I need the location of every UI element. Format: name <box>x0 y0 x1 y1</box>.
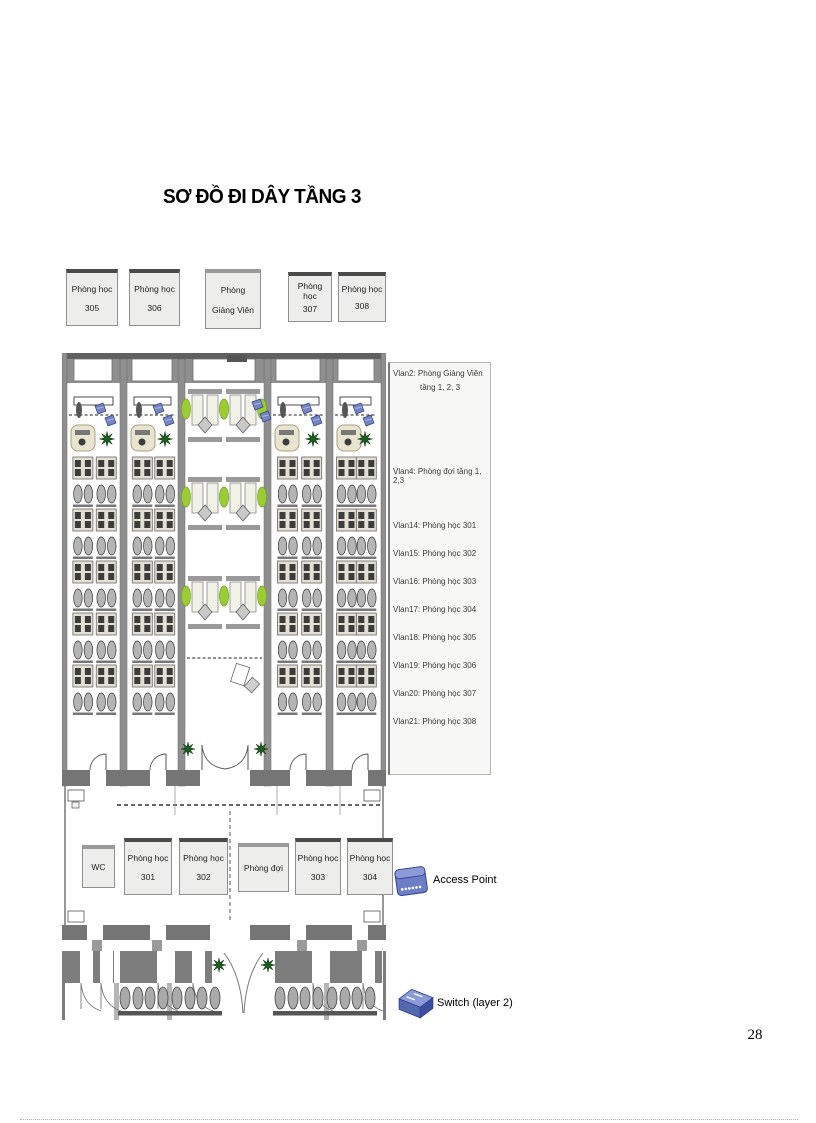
plant-icon <box>100 432 115 447</box>
room-callout-307: Phòng học 307 <box>288 272 332 322</box>
room-callout-308: Phòng học 308 <box>338 272 386 322</box>
chair-pair <box>337 693 357 715</box>
student-desk <box>96 561 116 583</box>
chair-pair <box>337 641 357 663</box>
switch-label: Switch (layer 2) <box>437 997 513 1009</box>
chair-pair <box>155 641 175 663</box>
student-desk <box>132 457 152 479</box>
plant-icon <box>182 487 191 507</box>
chair-pair <box>73 485 93 507</box>
page-title: SƠ ĐỒ ĐI DÂY TẦNG 3 <box>72 186 452 209</box>
chair-pair <box>356 485 376 507</box>
chair-pair <box>155 693 175 715</box>
chair-pair <box>356 693 376 715</box>
chair-pair <box>170 987 197 1016</box>
chair-pair <box>132 641 152 663</box>
door-arc <box>150 754 166 770</box>
chair-pair <box>73 537 93 559</box>
room-callout-line2: 304 <box>363 873 377 882</box>
classroom-305-furniture <box>69 397 118 786</box>
student-desk <box>356 665 376 687</box>
legend-item: Vlan17: Phòng học 304 <box>393 605 488 615</box>
chair-pair <box>118 987 145 1016</box>
student-desk <box>155 561 175 583</box>
document-page: SƠ ĐỒ ĐI DÂY TẦNG 3 Phòng học 305 Phòng … <box>0 0 816 1123</box>
student-desk <box>73 613 93 635</box>
double-door-arc <box>202 745 248 770</box>
teacher-desk <box>131 425 155 451</box>
legend-item: tầng 1, 2, 3 <box>390 383 490 392</box>
device-icon <box>244 677 259 693</box>
switch-icon <box>397 983 435 1021</box>
room-callout-line2: 308 <box>355 302 369 311</box>
classroom-307-furniture <box>273 397 324 786</box>
student-desk <box>302 665 322 687</box>
room-callout-giang-vien: Phòng Giảng Viên <box>205 269 261 329</box>
printer-icon <box>231 663 250 685</box>
room-callout-line1: Phòng học <box>72 285 113 294</box>
student-desk <box>278 509 298 531</box>
chair-pair <box>325 987 352 1016</box>
workstation-cluster <box>220 389 267 442</box>
wifi-device-icon <box>105 415 116 426</box>
access-point-icon <box>393 860 431 900</box>
student-desk <box>73 509 93 531</box>
student-desk <box>356 509 376 531</box>
room-callout-line2: 303 <box>311 873 325 882</box>
student-desk <box>356 561 376 583</box>
student-desk <box>132 613 152 635</box>
student-desk <box>278 665 298 687</box>
chair-pair <box>356 537 376 559</box>
page-boundary-dotted-line <box>20 1119 798 1120</box>
room-callout-304: Phòng học 304 <box>347 838 393 895</box>
student-desk <box>302 509 322 531</box>
student-desk <box>278 613 298 635</box>
student-desk <box>356 457 376 479</box>
legend-vlan-list: Vlan14: Phòng học 301 Vlan15: Phòng học … <box>393 521 488 745</box>
chair-pair <box>96 641 116 663</box>
student-desk <box>96 457 116 479</box>
chair-pair <box>132 537 152 559</box>
plant-icon <box>261 958 275 972</box>
plant-icon <box>182 399 191 419</box>
room-callout-306: Phòng học 306 <box>129 269 180 326</box>
student-desk <box>155 665 175 687</box>
student-desk <box>73 561 93 583</box>
legend-item: Vlan19: Phòng học 306 <box>393 661 488 671</box>
student-desk <box>73 457 93 479</box>
teacher-desk <box>71 425 95 451</box>
chair-pair <box>132 589 152 611</box>
student-desk <box>278 457 298 479</box>
student-desk <box>155 613 175 635</box>
vlan-legend-panel: Vlan2: Phòng Giảng Viên tầng 1, 2, 3 Vla… <box>388 362 491 775</box>
chair-pair <box>73 641 93 663</box>
plant-icon <box>258 487 267 507</box>
room-callout-302: Phòng học 302 <box>179 838 228 895</box>
room-callout-phong-doi: Phòng đợi <box>238 843 289 892</box>
plant-icon <box>212 958 226 972</box>
wifi-device-icon <box>363 415 374 426</box>
room-callout-line2: 306 <box>147 304 161 313</box>
plant-icon <box>254 742 268 756</box>
chair-pair <box>96 589 116 611</box>
plant-icon <box>220 586 229 606</box>
legend-item: Vlan16: Phòng học 303 <box>393 577 488 587</box>
door-arc <box>290 754 306 770</box>
student-desk <box>155 509 175 531</box>
room-callout-line1: Phòng học <box>342 285 383 294</box>
door-arc <box>244 953 263 1013</box>
lectern <box>136 402 142 418</box>
chair-pair <box>96 693 116 715</box>
student-desk <box>337 561 357 583</box>
legend-item: Vlan18: Phòng học 305 <box>393 633 488 643</box>
chair-pair <box>195 987 222 1016</box>
lectern <box>76 402 82 418</box>
page-number: 28 <box>740 1027 770 1044</box>
student-desk <box>302 457 322 479</box>
student-desk <box>278 561 298 583</box>
legend-item: Vlan15: Phòng học 302 <box>393 549 488 559</box>
chair-pair <box>302 693 322 715</box>
classroom-306-furniture <box>129 397 176 786</box>
chair-pair <box>302 537 322 559</box>
plant-icon <box>220 487 229 507</box>
chair-pair <box>73 693 93 715</box>
chair-pair <box>143 987 170 1016</box>
chair-pair <box>302 485 322 507</box>
chair-pair <box>337 485 357 507</box>
room-callout-303: Phòng học 303 <box>295 838 341 895</box>
lower-floor <box>62 940 386 1020</box>
room-callout-line1: WC <box>91 863 105 872</box>
room-callout-301: Phòng học 301 <box>124 838 172 895</box>
plant-icon <box>258 586 267 606</box>
room-callout-wc: WC <box>82 845 115 888</box>
chair-pair <box>132 485 152 507</box>
chair-pair <box>278 537 298 559</box>
legend-item: Vlan2: Phòng Giảng Viên <box>393 369 488 378</box>
teacher-room-furniture <box>181 389 271 786</box>
legend-item: Vlan14: Phòng học 301 <box>393 521 488 531</box>
chair-pair <box>278 693 298 715</box>
room-callout-line2: Giảng Viên <box>212 306 254 315</box>
room-callout-305: Phòng học 305 <box>66 269 118 326</box>
chair-pair <box>302 589 322 611</box>
lectern <box>280 402 286 418</box>
student-desk <box>96 509 116 531</box>
chair-pair <box>155 589 175 611</box>
room-callout-line1: Phòng <box>221 286 246 295</box>
chair-pair <box>155 485 175 507</box>
door-arc <box>90 754 106 770</box>
student-desk <box>155 457 175 479</box>
workstation-cluster <box>220 576 267 629</box>
top-wall <box>62 353 386 383</box>
lectern <box>342 402 348 418</box>
access-point-label: Access Point <box>433 874 497 886</box>
floor-plan <box>62 353 386 1020</box>
chair-pair <box>356 641 376 663</box>
chair-pair <box>278 641 298 663</box>
room-callout-line1: Phòng học <box>290 282 330 301</box>
room-callout-line1: Phòng học <box>298 854 339 863</box>
plant-icon <box>306 432 321 447</box>
chair-pair <box>155 537 175 559</box>
student-desk <box>337 457 357 479</box>
chair-pair <box>337 537 357 559</box>
student-desk <box>132 665 152 687</box>
chair-pair <box>302 641 322 663</box>
chair-pair <box>298 987 325 1016</box>
legend-item: Vlan4: Phòng đợi tầng 1, 2,3 <box>393 467 488 485</box>
student-desk <box>73 665 93 687</box>
student-desk <box>337 613 357 635</box>
door-arc <box>352 754 368 770</box>
chair-pair <box>96 537 116 559</box>
plant-icon <box>358 432 373 447</box>
wifi-device-icon <box>311 415 322 426</box>
legend-item: Vlan21: Phòng học 308 <box>393 717 488 727</box>
room-callout-line2: 305 <box>85 304 99 313</box>
plant-icon <box>158 432 173 447</box>
plant-icon <box>181 742 195 756</box>
chair-pair <box>278 589 298 611</box>
room-callout-line1: Phòng học <box>134 285 175 294</box>
chair-pair <box>273 987 300 1016</box>
chair-pair <box>132 693 152 715</box>
room-callout-line1: Phòng học <box>183 854 224 863</box>
chair-pair <box>350 987 377 1016</box>
student-desk <box>302 561 322 583</box>
student-desk <box>337 665 357 687</box>
door-arc <box>81 983 101 1011</box>
door-arc <box>224 953 243 1013</box>
teacher-desk <box>275 425 299 451</box>
student-desk <box>337 509 357 531</box>
plant-icon <box>182 586 191 606</box>
chair-pair <box>278 485 298 507</box>
student-desk <box>132 561 152 583</box>
chair-pair <box>73 589 93 611</box>
room-callout-line1: Phòng học <box>128 854 169 863</box>
student-desk <box>96 613 116 635</box>
student-desk <box>302 613 322 635</box>
room-callout-line2: 301 <box>141 873 155 882</box>
chair-pair <box>337 589 357 611</box>
room-callout-line2: 307 <box>303 305 317 314</box>
room-callout-line1: Phòng học <box>350 854 391 863</box>
student-desk <box>132 509 152 531</box>
chair-pair <box>96 485 116 507</box>
room-callout-line1: Phòng đợi <box>244 864 283 873</box>
room-callout-line2: 302 <box>196 873 210 882</box>
plant-icon <box>220 399 229 419</box>
student-desk <box>356 613 376 635</box>
chair-pair <box>356 589 376 611</box>
legend-item: Vlan20: Phòng học 307 <box>393 689 488 699</box>
student-desk <box>96 665 116 687</box>
teacher-desk <box>337 425 361 451</box>
classroom-308-furniture <box>335 397 376 786</box>
workstation-cluster <box>220 477 267 530</box>
wifi-device-icon <box>163 415 174 426</box>
